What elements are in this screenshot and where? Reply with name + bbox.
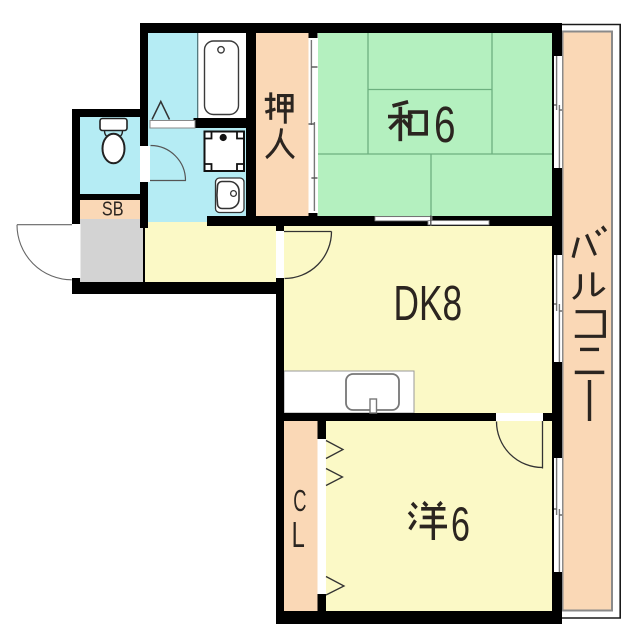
svg-text:6: 6 xyxy=(434,96,456,153)
svg-text:L: L xyxy=(292,514,305,556)
svg-text:6: 6 xyxy=(451,496,470,550)
svg-text:SB: SB xyxy=(102,198,124,220)
svg-text:DK8: DK8 xyxy=(394,276,463,331)
